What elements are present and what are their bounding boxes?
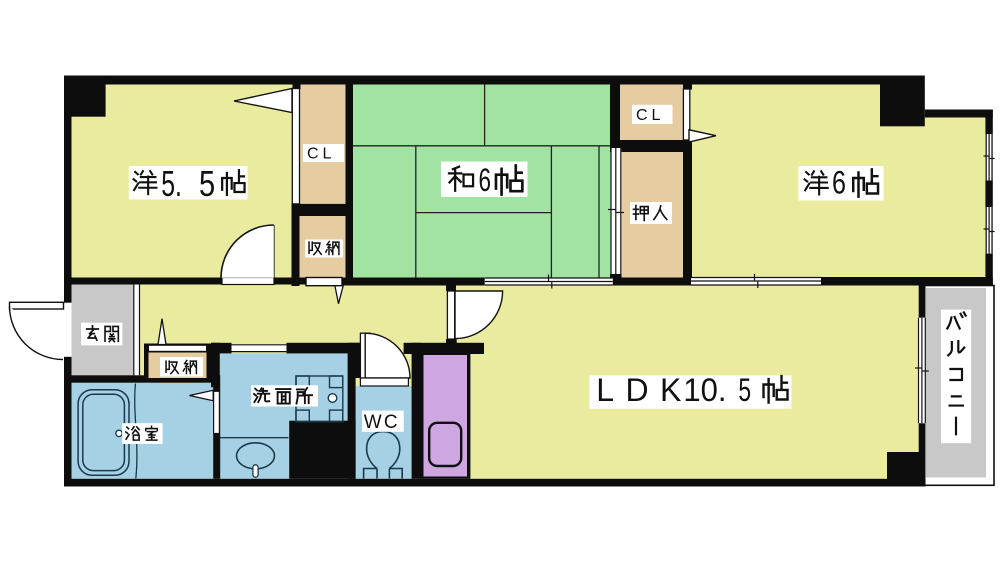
- svg-text:6: 6: [479, 162, 492, 198]
- svg-text:5.: 5.: [161, 163, 182, 204]
- svg-text:5: 5: [199, 163, 215, 204]
- svg-text:5: 5: [738, 372, 751, 408]
- svg-text:LDK: LDK: [596, 372, 681, 408]
- svg-text:10.: 10.: [683, 372, 726, 408]
- svg-text:CL: CL: [636, 107, 664, 124]
- svg-text:6: 6: [832, 165, 846, 201]
- svg-text:CL: CL: [307, 146, 335, 163]
- svg-text:WC: WC: [364, 412, 400, 433]
